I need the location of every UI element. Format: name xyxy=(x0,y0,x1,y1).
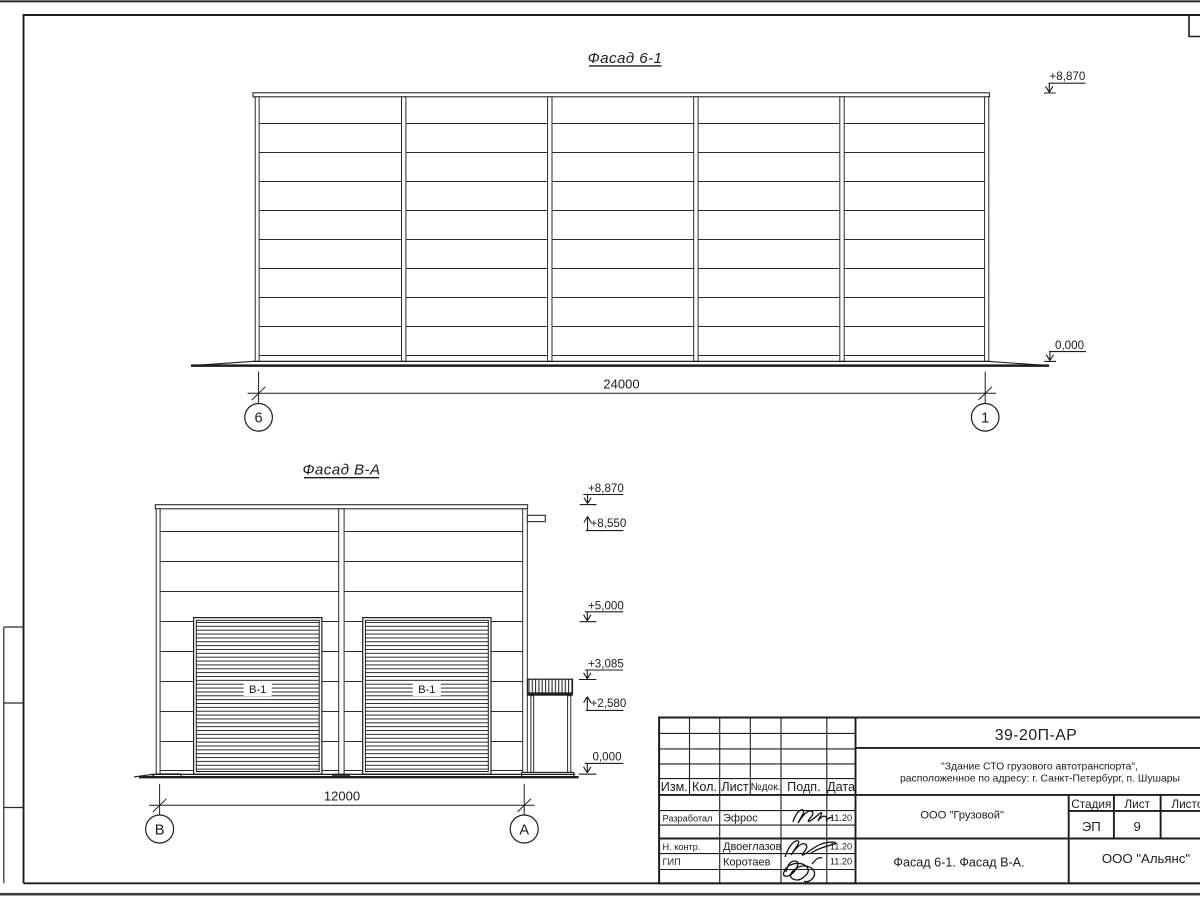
svg-text:Стадия: Стадия xyxy=(1071,797,1111,811)
svg-text:6: 6 xyxy=(255,411,263,427)
svg-text:В-1: В-1 xyxy=(418,684,435,696)
svg-text:Кол.: Кол. xyxy=(692,780,717,794)
svg-text:11.20: 11.20 xyxy=(830,841,852,851)
svg-text:1: 1 xyxy=(981,411,989,427)
svg-text:Листов: Листов xyxy=(1171,797,1200,811)
svg-text:Н. контр.: Н. контр. xyxy=(663,842,701,852)
svg-text:Дата: Дата xyxy=(827,780,855,794)
svg-text:+5,000: +5,000 xyxy=(588,599,624,612)
svg-text:Фасад 6-1: Фасад 6-1 xyxy=(588,50,663,67)
svg-text:ЭП: ЭП xyxy=(1082,819,1101,834)
svg-text:ГИП: ГИП xyxy=(663,857,681,867)
svg-text:+8,870: +8,870 xyxy=(1050,70,1086,83)
svg-text:0,000: 0,000 xyxy=(593,750,622,763)
svg-text:Двоеглазов: Двоеглазов xyxy=(723,841,782,853)
svg-text:№док.: №док. xyxy=(751,782,781,793)
svg-text:39-20П-АР: 39-20П-АР xyxy=(995,727,1078,744)
svg-text:Эфрос: Эфрос xyxy=(723,812,758,824)
svg-text:24000: 24000 xyxy=(603,377,639,392)
svg-text:Коротаев: Коротаев xyxy=(723,856,771,868)
svg-text:Фасад В-А: Фасад В-А xyxy=(302,462,380,479)
svg-text:ООО "Грузовой": ООО "Грузовой" xyxy=(920,810,1004,822)
svg-text:11.20: 11.20 xyxy=(830,813,852,823)
svg-text:9: 9 xyxy=(1134,819,1141,834)
svg-text:Фасад 6-1. Фасад В-А.: Фасад 6-1. Фасад В-А. xyxy=(893,855,1024,869)
svg-text:В: В xyxy=(155,822,165,838)
svg-text:+2,580: +2,580 xyxy=(591,697,627,710)
svg-text:Подп.: Подп. xyxy=(787,780,820,794)
svg-text:расположенное по адресу: г. Са: расположенное по адресу: г. Санкт-Петерб… xyxy=(900,773,1180,785)
svg-text:Разработал: Разработал xyxy=(663,814,713,824)
svg-text:ООО "Альянс": ООО "Альянс" xyxy=(1102,851,1190,866)
svg-text:11.20: 11.20 xyxy=(830,856,852,866)
svg-text:В-1: В-1 xyxy=(249,684,266,696)
svg-text:Лист: Лист xyxy=(1124,797,1150,811)
svg-text:Изм.: Изм. xyxy=(661,780,688,794)
svg-text:+3,085: +3,085 xyxy=(588,657,624,670)
svg-text:"Здание СТО грузового автотран: "Здание СТО грузового автотранспорта", xyxy=(941,761,1138,772)
svg-text:12000: 12000 xyxy=(324,789,360,804)
svg-text:0,000: 0,000 xyxy=(1055,339,1084,352)
svg-text:+8,550: +8,550 xyxy=(591,517,627,530)
svg-text:А: А xyxy=(519,822,529,838)
svg-text:Лист: Лист xyxy=(721,780,749,794)
svg-text:+8,870: +8,870 xyxy=(588,482,624,495)
